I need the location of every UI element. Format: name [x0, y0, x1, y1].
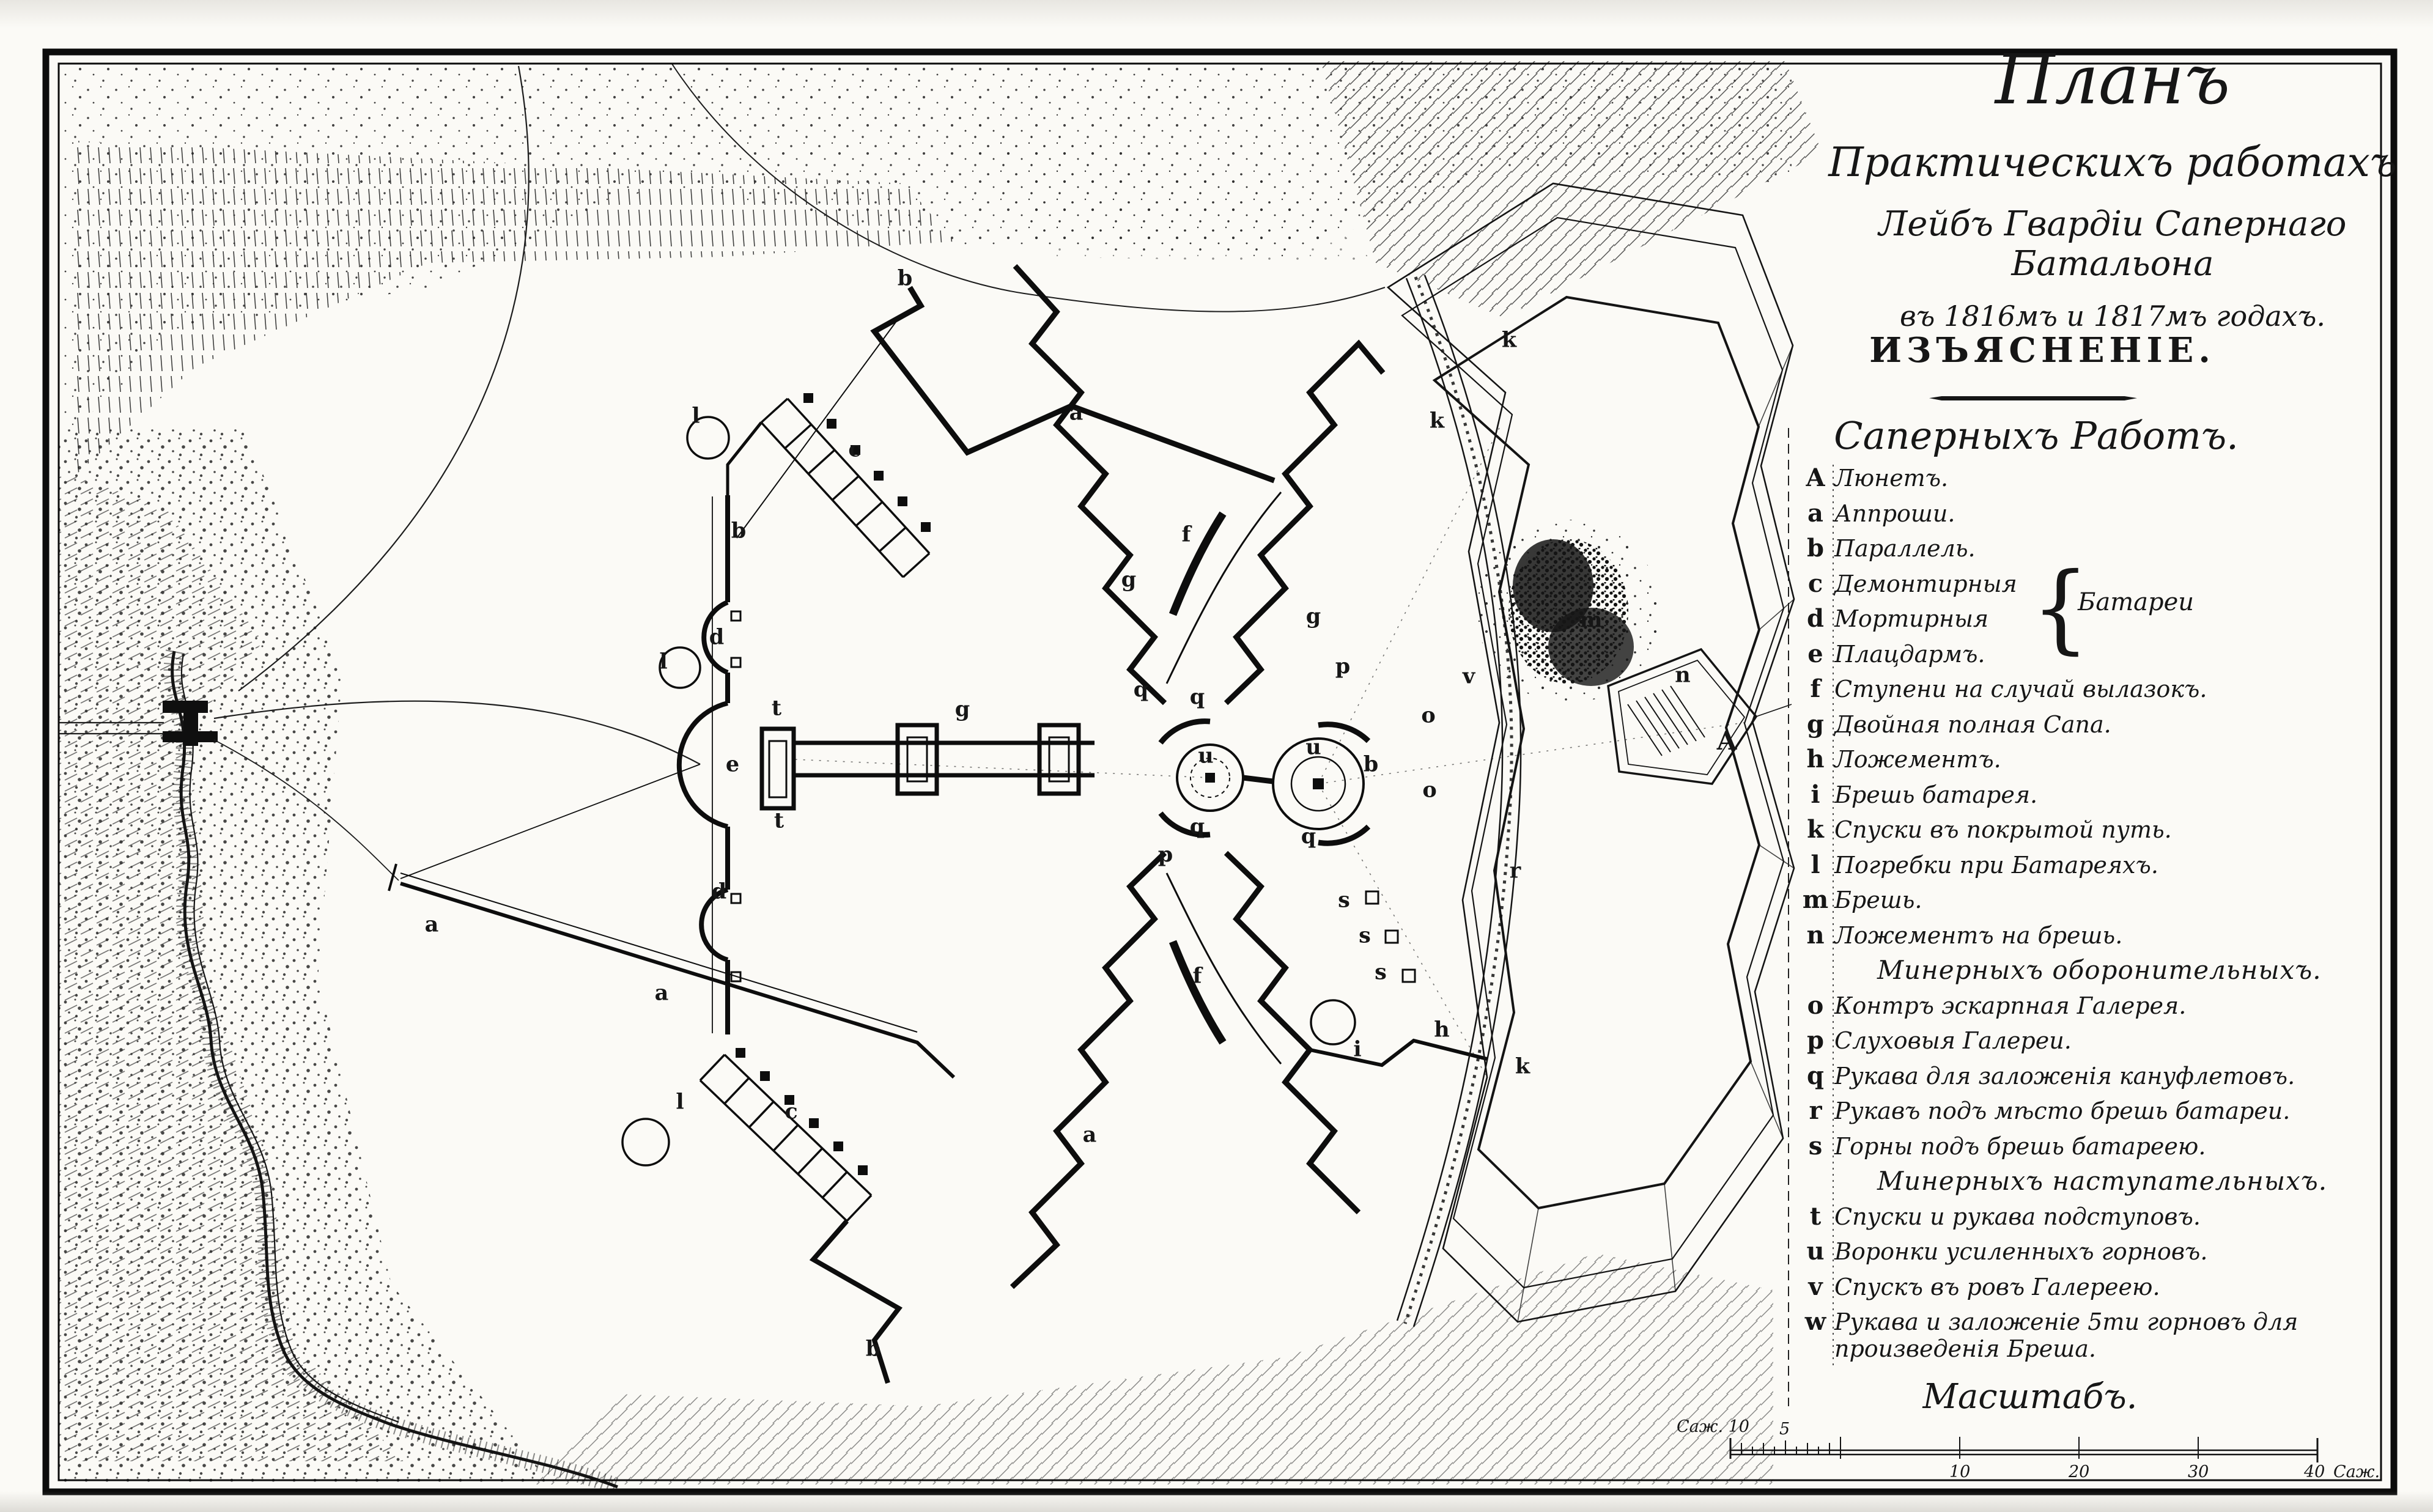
- map-letter: c: [848, 439, 861, 460]
- siege-works: [389, 266, 1752, 1383]
- covered-way: [1397, 275, 1521, 1327]
- legend-item-text: Ложементъ на брешь.: [1834, 923, 2122, 950]
- map-letter: a: [425, 914, 439, 935]
- map-letter: k: [1502, 330, 1516, 351]
- map-letter: b: [731, 520, 746, 542]
- legend-item: n Ложементъ на брешь.: [1796, 921, 2408, 956]
- legend-item-letter: w: [1796, 1307, 1834, 1336]
- legend-item: g Двойная полная Сапа.: [1796, 710, 2408, 745]
- legend-item-letter: a: [1796, 499, 1834, 528]
- legend-item-letter: q: [1796, 1061, 1834, 1090]
- engraved-plan-page: b c l a b d l t e t g g q q u u: [0, 0, 2433, 1512]
- map-letter: p: [1158, 844, 1173, 866]
- legend-item-text: Спуски въ покрытой путь.: [1834, 817, 2172, 844]
- legend-item-letter: r: [1796, 1096, 1834, 1125]
- title-block: Планъ Практическихъ работахъ Лейбъ Гвард…: [1828, 43, 2397, 333]
- map-letter: v: [1463, 666, 1475, 687]
- map-letter: d: [712, 881, 726, 902]
- rampart-outline: [1434, 297, 1759, 1208]
- legend-item-text: Слуховыя Галереи.: [1834, 1028, 2072, 1055]
- map-letter: q: [1190, 687, 1205, 708]
- scale-title: Масштабъ.: [1840, 1377, 2220, 1417]
- map-letter: h: [1434, 1019, 1449, 1041]
- map-letter: q: [1134, 679, 1148, 701]
- legend-item-text: Спускъ въ ровъ Галереею.: [1834, 1274, 2160, 1301]
- lower-approach: [389, 764, 954, 1077]
- legend-item-letter: e: [1796, 640, 1834, 668]
- map-letter: p: [1335, 656, 1350, 677]
- legend-item-letter: t: [1796, 1202, 1834, 1231]
- legend-item-text: Демонтирныя: [1834, 571, 2017, 598]
- legend-item: m Брешь.: [1796, 885, 2408, 921]
- legend-item-text: Люнетъ.: [1834, 465, 1948, 492]
- legend-item-text: Плацдармъ.: [1834, 641, 1985, 668]
- map-letter: o: [1422, 780, 1436, 801]
- title-line-1: Планъ: [1828, 43, 2397, 118]
- legend-item: o Контръ эскарпная Галерея.: [1796, 991, 2408, 1027]
- legend-item: e Плацдармъ.: [1796, 640, 2408, 675]
- legend-item-letter: m: [1796, 885, 1834, 914]
- left-parallel: [622, 417, 794, 1165]
- legend-item-text: Горны подъ брешь батареею.: [1834, 1134, 2206, 1160]
- map-letter: k: [1515, 1056, 1530, 1077]
- central-gallery: [794, 725, 1095, 794]
- map-letter: o: [1421, 705, 1435, 726]
- legend-item-letter: d: [1796, 604, 1834, 633]
- legend-item: r Рукавъ подъ мѣсто брешь батареи.: [1796, 1096, 2408, 1132]
- map-letter: a: [655, 983, 669, 1004]
- map-letter: s: [1359, 925, 1371, 946]
- legend-item: a Аппроши.: [1796, 499, 2408, 534]
- battery-lower: [700, 1048, 871, 1221]
- map-letter: n: [1675, 665, 1690, 686]
- map-letter: A: [1717, 728, 1737, 754]
- map-letter: g: [955, 699, 970, 720]
- legend-item: Минерныхъ наступательныхъ.: [1796, 1167, 2408, 1202]
- legend-item: u Воронки усиленныхъ горновъ.: [1796, 1237, 2408, 1272]
- legend-item-letter: p: [1796, 1026, 1834, 1055]
- legend-item-text: Воронки усиленныхъ горновъ.: [1834, 1239, 2207, 1266]
- lower-parallel: [813, 1221, 899, 1383]
- legend-item-letter: l: [1796, 850, 1834, 879]
- legend-header: ИЗЪЯСНЕНІЕ.: [1828, 330, 2256, 371]
- map-letter: f: [1192, 965, 1202, 987]
- legend-item-letter: f: [1796, 674, 1834, 703]
- legend-item-text: Рукавъ подъ мѣсто брешь батареи.: [1834, 1098, 2290, 1125]
- map-letter: u: [1198, 745, 1213, 767]
- legend-item-text: Ложементъ.: [1834, 747, 2001, 773]
- legend-item-letter: k: [1796, 815, 1834, 844]
- scale-bar: [1730, 1437, 2317, 1462]
- legend-item: t Спуски и рукава подступовъ.: [1796, 1202, 2408, 1237]
- legend-item: q Рукава для заложенія кануфлетовъ.: [1796, 1061, 2408, 1097]
- map-letter: f: [1181, 524, 1191, 545]
- scale-tick-30: 30: [2188, 1462, 2209, 1481]
- scale-five: 5: [1779, 1420, 1790, 1439]
- legend-item: Минерныхъ оборонительныхъ.: [1796, 956, 2408, 991]
- scale-tick-10: 10: [1949, 1462, 1970, 1481]
- legend-item-letter: i: [1796, 780, 1834, 809]
- breach-blast: [1477, 520, 1660, 703]
- legend-item-text: Аппроши.: [1834, 501, 1955, 528]
- legend-item-text: Мортирныя: [1834, 606, 1988, 633]
- map-letter: g: [1306, 606, 1321, 627]
- legend-item-letter: h: [1796, 745, 1834, 773]
- map-letter: d: [709, 627, 724, 648]
- legend-item-text: Брешь.: [1834, 887, 1922, 914]
- legend-item: l Погребки при Батареяхъ.: [1796, 850, 2408, 886]
- legend-item-text: Погребки при Батареяхъ.: [1834, 852, 2158, 879]
- map-letter: m: [1579, 610, 1602, 631]
- legend-item-letter: s: [1796, 1132, 1834, 1160]
- map-letter: s: [1338, 890, 1350, 911]
- battery-upper: [728, 393, 931, 577]
- legend-item-text: Минерныхъ наступательныхъ.: [1877, 1167, 2327, 1196]
- title-line-4: въ 1816мъ и 1817мъ годахъ.: [1828, 300, 2397, 333]
- legend-item-text: Рукава и заложеніе 5ти горновъ для произ…: [1834, 1309, 2372, 1362]
- legend-item-letter: c: [1796, 569, 1834, 598]
- legend-item: i Брешь батарея.: [1796, 780, 2408, 816]
- terrain-texture: [58, 61, 1822, 1484]
- map-letter: q: [1301, 826, 1316, 847]
- legend-section-title: Саперныхъ Работъ.: [1828, 413, 2244, 458]
- legend-item: v Спускъ въ ровъ Галереею.: [1796, 1272, 2408, 1308]
- title-line-3: Лейбъ Гвардіи Сапернаго Батальона: [1828, 204, 2397, 284]
- map-letter: e: [726, 754, 739, 775]
- legend-item-letter: A: [1796, 463, 1834, 492]
- legend-brace-label: Батареи: [2078, 588, 2194, 616]
- scale-tick-40: 40: [2304, 1462, 2325, 1481]
- legend-item-letter: b: [1796, 534, 1834, 562]
- legend-item: k Спуски въ покрытой путь.: [1796, 815, 2408, 850]
- legend-item: s Горны подъ брешь батареею.: [1796, 1132, 2408, 1167]
- scale-unit: Саж.: [2333, 1462, 2380, 1481]
- map-letter: t: [772, 698, 781, 719]
- legend-item-letter: u: [1796, 1237, 1834, 1266]
- legend-item-text: Брешь батарея.: [1834, 782, 2037, 809]
- legend-rule: [1929, 396, 2137, 400]
- legend-item-text: Спуски и рукава подступовъ.: [1834, 1204, 2201, 1231]
- map-letter: g: [1121, 569, 1136, 591]
- scan-smudge-bottom: [0, 1491, 2433, 1512]
- map-letter: u: [1305, 737, 1321, 758]
- map-letter: l: [676, 1091, 684, 1113]
- legend-item-text: Минерныхъ оборонительныхъ.: [1877, 956, 2322, 985]
- legend-item: b Параллель.: [1796, 534, 2408, 569]
- legend-item: p Слуховыя Галереи.: [1796, 1026, 2408, 1061]
- legend-item-text: Параллель.: [1834, 536, 1976, 562]
- title-line-2: Практическихъ работахъ: [1828, 139, 2397, 186]
- map-letter: s: [1375, 962, 1387, 983]
- map-letter: t: [774, 810, 784, 832]
- map-letter: a: [1083, 1124, 1097, 1146]
- map-letter: l: [692, 405, 700, 427]
- legend-item-text: Ступени на случай вылазокъ.: [1834, 676, 2207, 703]
- map-letter: b: [866, 1338, 881, 1360]
- legend-item-letter: n: [1796, 921, 1834, 950]
- legend-item-text: Контръ эскарпная Галерея.: [1834, 993, 2186, 1020]
- scale-left-label: Саж. 10: [1677, 1417, 1749, 1436]
- map-letter: q: [1190, 816, 1205, 838]
- map-letter: l: [659, 651, 667, 673]
- legend-item-text: Рукава для заложенія кануфлетовъ.: [1834, 1063, 2295, 1090]
- legend-item: w Рукава и заложеніе 5ти горновъ для про…: [1796, 1307, 2408, 1362]
- mine-horns: [1311, 891, 1415, 1044]
- legend-item-letter: v: [1796, 1272, 1834, 1301]
- legend-item: h Ложементъ.: [1796, 745, 2408, 780]
- map-letter: b: [1364, 754, 1378, 775]
- map-letter: c: [785, 1101, 797, 1123]
- scale-tick-20: 20: [2069, 1462, 2089, 1481]
- legend-item-letter: g: [1796, 710, 1834, 739]
- legend-item-letter: o: [1796, 991, 1834, 1020]
- map-letter: r: [1510, 860, 1521, 882]
- map-letter: i: [1353, 1039, 1361, 1060]
- map-letter: k: [1430, 410, 1444, 432]
- map-letter: b: [898, 268, 912, 289]
- legend-item-text: Двойная полная Сапа.: [1834, 712, 2111, 739]
- fort-spokes: [1518, 345, 1794, 1322]
- map-letter: a: [1069, 402, 1084, 424]
- legend-item: A Люнетъ.: [1796, 463, 2408, 499]
- legend-item: f Ступени на случай вылазокъ.: [1796, 674, 2408, 710]
